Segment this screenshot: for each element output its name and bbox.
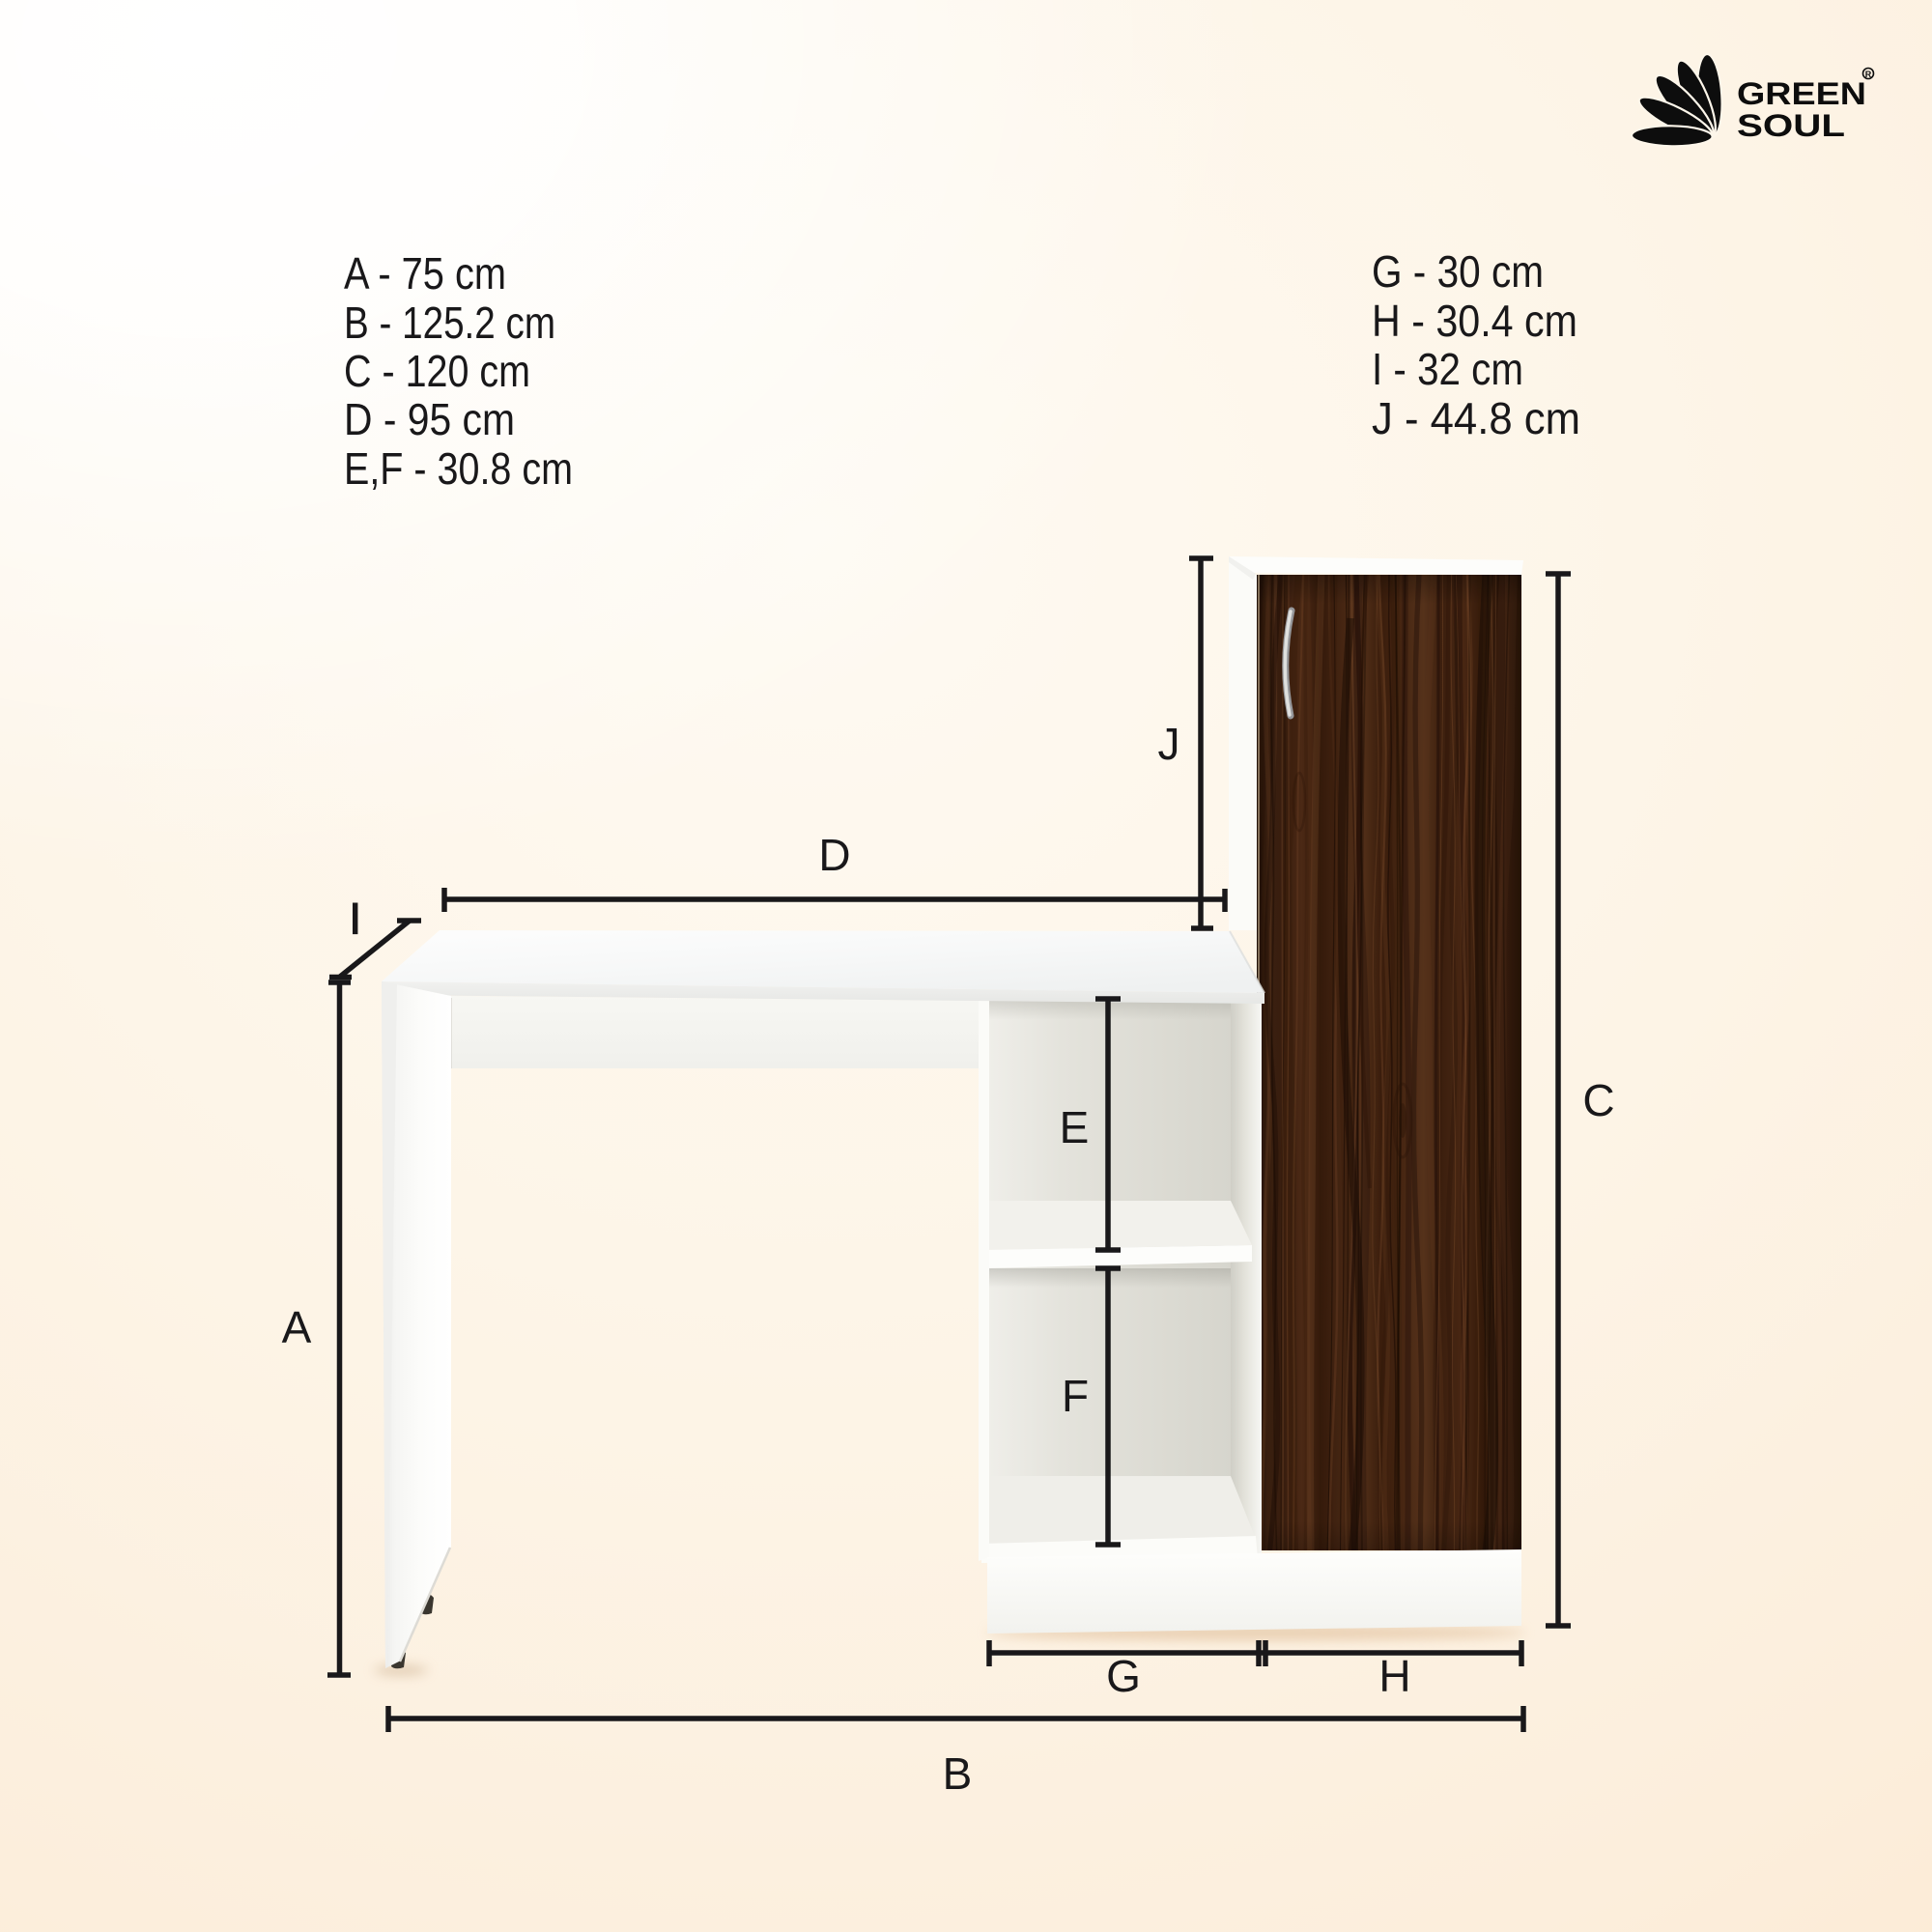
svg-text:J - 44.8 cm: J - 44.8 cm (1372, 393, 1580, 443)
svg-text:E,F - 30.8 cm: E,F - 30.8 cm (344, 443, 573, 494)
svg-text:H - 30.4 cm: H - 30.4 cm (1372, 296, 1577, 346)
svg-text:C: C (1582, 1075, 1614, 1125)
svg-text:J: J (1158, 719, 1180, 769)
svg-text:A - 75 cm: A - 75 cm (344, 248, 506, 298)
svg-text:GREEN: GREEN (1737, 76, 1866, 111)
svg-text:D: D (818, 830, 850, 880)
svg-text:C - 120 cm: C - 120 cm (344, 346, 530, 396)
svg-text:G: G (1106, 1651, 1141, 1701)
svg-text:B: B (943, 1748, 973, 1799)
svg-text:SOUL: SOUL (1737, 108, 1845, 143)
svg-text:R: R (1865, 70, 1872, 79)
svg-text:F: F (1062, 1371, 1089, 1421)
svg-text:D - 95 cm: D - 95 cm (344, 394, 515, 444)
svg-text:E: E (1060, 1102, 1090, 1152)
svg-text:H: H (1378, 1651, 1410, 1701)
svg-text:A: A (282, 1302, 312, 1352)
svg-text:G - 30 cm: G - 30 cm (1372, 246, 1544, 297)
svg-text:I - 32 cm: I - 32 cm (1372, 344, 1523, 394)
svg-text:B - 125.2 cm: B - 125.2 cm (344, 298, 555, 348)
